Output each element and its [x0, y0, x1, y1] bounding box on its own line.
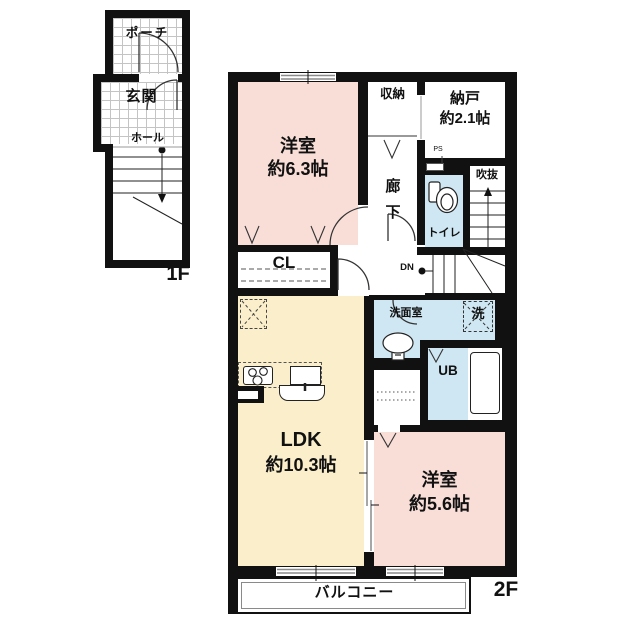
refrigerator-space — [240, 299, 267, 329]
kitchen-stub-inset — [238, 391, 258, 399]
balcony-label: バルコニー — [238, 584, 471, 601]
ldk-label: LDK — [238, 429, 364, 452]
hall-label: ホール — [113, 132, 182, 145]
ps-duct — [426, 163, 444, 171]
ps-label: PS — [427, 146, 449, 154]
hall-floor — [113, 144, 182, 260]
washbasin-nook — [374, 340, 420, 358]
shuno-label: 収納 — [368, 87, 417, 101]
void-label: 吹抜 — [468, 169, 506, 182]
toilet-label: トイレ — [421, 227, 467, 240]
wall-porch-top — [105, 10, 190, 18]
nando-door-gap — [417, 95, 425, 140]
bedroom2-closet-door-gap — [378, 424, 400, 432]
sink-counter-icon — [290, 366, 321, 385]
bedroom2-size: 約5.6帖 — [374, 494, 505, 515]
wall-genkan-left — [93, 74, 101, 150]
dn-label: DN — [396, 263, 418, 274]
ldk-size: 約10.3帖 — [238, 455, 364, 476]
sink-basin-icon — [279, 385, 325, 401]
bedroom1-label: 洋室 — [238, 136, 358, 157]
window-ldk-balcony — [276, 567, 356, 576]
entry-door-gap — [139, 74, 178, 82]
washroom-label: 洗面室 — [374, 307, 438, 320]
bathtub-icon — [470, 352, 500, 414]
closet-cl-label: CL — [238, 253, 330, 273]
bedroom1-door-gap — [358, 205, 368, 245]
unit-bath-room — [428, 348, 468, 420]
window-bedroom2-balcony — [386, 567, 444, 576]
bedroom2-label: 洋室 — [374, 470, 505, 491]
wall-balcony-left — [228, 577, 238, 614]
bedroom2-closet — [374, 370, 420, 425]
floor-plan: ポーチ 玄関 ホール 1F 洋室 約6.3帖 収納 納戸 約2.1帖 PS 廊 … — [0, 0, 640, 640]
wall-1f-right — [182, 10, 190, 268]
wall-hall-left — [105, 128, 113, 268]
sliding-door-gap — [364, 440, 374, 552]
window-top — [280, 73, 336, 81]
stairwell-lower — [425, 255, 505, 293]
bedroom1-size: 約6.3帖 — [238, 159, 358, 180]
floor-1f-label: 1F — [158, 263, 198, 286]
washer-label: 洗 — [463, 307, 493, 322]
entrance-label: 玄関 — [101, 88, 182, 105]
porch-label: ポーチ — [113, 26, 182, 40]
stove-icon — [243, 366, 273, 385]
ldk-door-gap — [338, 288, 369, 296]
corridor-label-1: 廊 — [384, 178, 402, 195]
corridor-label-2: 下 — [384, 204, 402, 221]
wall-porch-left — [105, 10, 113, 82]
floor-2f-label: 2F — [484, 578, 528, 602]
wall-toilet-bottom — [417, 247, 470, 255]
nando-label: 納戸 — [425, 90, 505, 107]
unit-bath-label: UB — [428, 363, 468, 379]
nando-size: 約2.1帖 — [425, 110, 505, 127]
